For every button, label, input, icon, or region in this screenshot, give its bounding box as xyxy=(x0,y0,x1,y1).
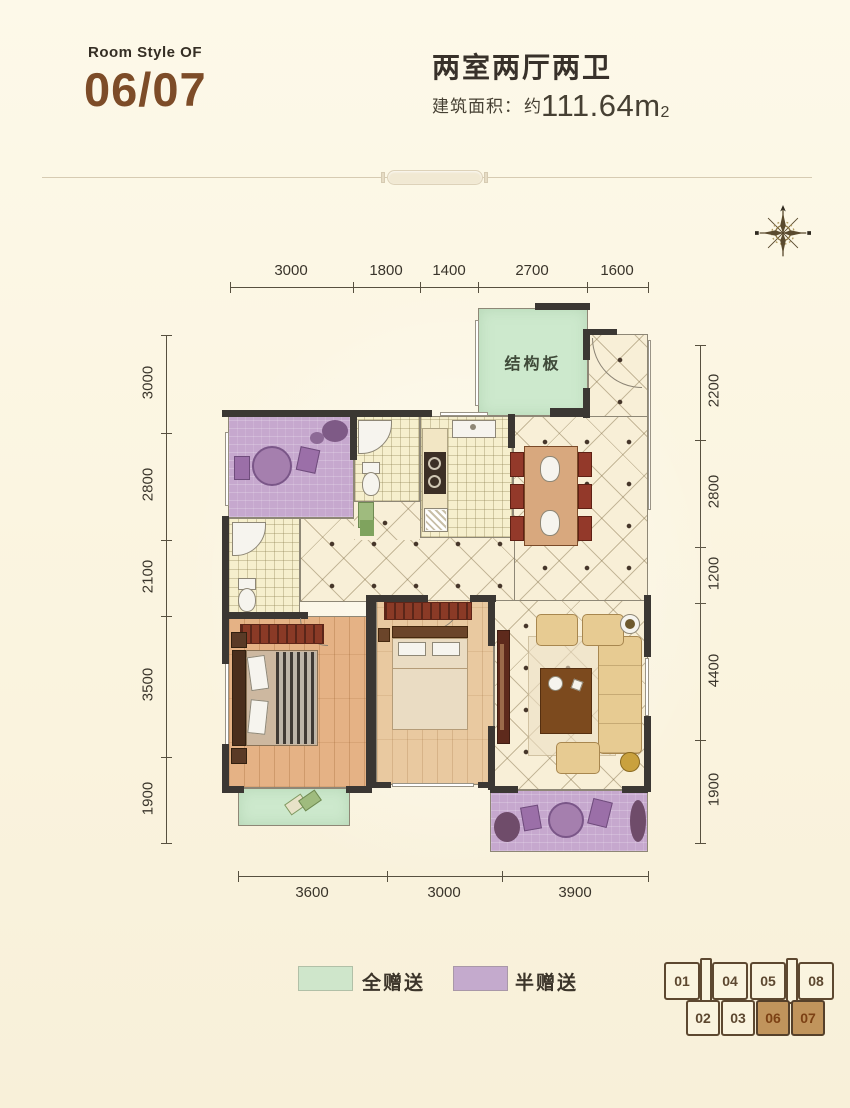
wall xyxy=(488,726,495,790)
window xyxy=(645,658,649,716)
compass-rose-icon xyxy=(755,205,811,261)
wall xyxy=(644,595,651,657)
tv-screen xyxy=(500,644,504,730)
dim-left-1: 3000 xyxy=(140,348,157,418)
keyplan-unit-08: 08 xyxy=(798,962,834,1000)
pillow xyxy=(398,642,426,656)
dim-left-3: 2100 xyxy=(140,542,157,612)
legend-label-half-gift: 半赠送 xyxy=(515,968,578,995)
bed-blanket xyxy=(276,652,316,744)
dining-chair xyxy=(510,452,524,477)
plant xyxy=(360,520,374,536)
legend-swatch-full-gift xyxy=(298,966,353,991)
sofa-single xyxy=(582,614,624,646)
divider-endcap-right xyxy=(484,172,488,183)
plant xyxy=(625,619,635,629)
wall xyxy=(222,410,432,417)
wall xyxy=(376,782,391,788)
dim-bottom-2: 3000 xyxy=(404,884,484,901)
tick xyxy=(161,757,172,758)
wall xyxy=(488,600,495,646)
appliance-detail xyxy=(426,510,446,530)
wall xyxy=(366,598,376,788)
legend-swatch-half-gift xyxy=(453,966,508,991)
wall xyxy=(222,612,308,619)
tea-set xyxy=(548,676,563,691)
pillow xyxy=(247,699,268,735)
round-table xyxy=(252,446,292,486)
wardrobe xyxy=(384,602,472,620)
keyplan-unit-04: 04 xyxy=(712,962,748,1000)
burner xyxy=(428,475,441,488)
tick xyxy=(161,843,172,844)
wall xyxy=(644,716,651,792)
divider-endcap-left xyxy=(381,172,385,183)
structural-slab-label: 结构板 xyxy=(504,350,561,374)
wall xyxy=(583,330,590,360)
area-line: 建筑面积： 约 111.64m 2 xyxy=(432,90,669,121)
dim-top-4: 2700 xyxy=(492,262,572,279)
wall xyxy=(222,786,244,793)
wall xyxy=(222,516,229,618)
dim-top-3: 1400 xyxy=(409,262,489,279)
scale-line-left xyxy=(166,335,167,843)
tick xyxy=(161,433,172,434)
wall xyxy=(366,595,428,602)
keyplan-unit-05: 05 xyxy=(750,962,786,1000)
chair xyxy=(520,805,542,832)
area-exponent: 2 xyxy=(661,105,670,121)
dining-chair xyxy=(578,516,592,541)
nightstand xyxy=(231,632,247,648)
window xyxy=(225,432,229,506)
stair-core xyxy=(786,958,798,1004)
wall xyxy=(508,414,515,448)
window xyxy=(440,412,488,416)
bed-headboard xyxy=(392,626,468,638)
place-setting xyxy=(540,510,560,536)
layout-title: 两室两厅两卫 xyxy=(432,46,612,86)
window xyxy=(475,320,479,406)
chair xyxy=(234,456,250,480)
sofa-main xyxy=(598,636,642,754)
wardrobe xyxy=(240,624,324,644)
nightstand xyxy=(378,628,390,642)
keyplan-unit-06: 06 xyxy=(756,1000,790,1036)
dim-bottom-3: 3900 xyxy=(535,884,615,901)
place-setting xyxy=(540,456,560,482)
tick xyxy=(161,616,172,617)
keyplan-unit-02: 02 xyxy=(686,1000,720,1036)
window xyxy=(648,340,651,510)
keyplan-unit-01: 01 xyxy=(664,962,700,1000)
toilet xyxy=(238,588,256,612)
dim-top-5: 1600 xyxy=(577,262,657,279)
sofa-single xyxy=(536,614,578,646)
wall xyxy=(222,616,229,664)
area-approx: 约 xyxy=(524,92,541,121)
stair-core xyxy=(700,958,712,1004)
wall xyxy=(535,303,590,310)
pillow xyxy=(432,642,460,656)
dim-left-2: 2800 xyxy=(140,450,157,520)
room-numbers: 06/07 xyxy=(84,62,207,117)
dining-chair xyxy=(510,516,524,541)
wall xyxy=(350,412,357,460)
keyplan-unit-03: 03 xyxy=(721,1000,755,1036)
dining-chair xyxy=(578,484,592,509)
window xyxy=(225,662,229,748)
bed-headboard xyxy=(232,650,246,746)
sofa-single xyxy=(556,742,600,774)
blanket-fold xyxy=(392,668,468,669)
room-style-label: Room Style OF xyxy=(88,44,202,61)
window xyxy=(392,783,474,787)
burner xyxy=(428,457,441,470)
dining-chair xyxy=(510,484,524,509)
toilet xyxy=(362,472,380,496)
dim-left-5: 1900 xyxy=(140,764,157,834)
dim-left-4: 3500 xyxy=(140,650,157,720)
plant-pot xyxy=(620,752,640,772)
plant xyxy=(630,800,646,842)
area-label: 建筑面积： xyxy=(432,92,522,121)
wall xyxy=(622,786,648,793)
wall xyxy=(490,786,518,793)
structural-slab-room: 结构板 xyxy=(478,308,588,416)
tick xyxy=(161,540,172,541)
plant xyxy=(494,812,520,842)
wall xyxy=(222,744,229,792)
area-value: 111.64m xyxy=(541,90,661,121)
round-table xyxy=(548,802,584,838)
plant xyxy=(310,432,324,444)
keyplan-unit-07: 07 xyxy=(791,1000,825,1036)
plant xyxy=(322,420,348,442)
wall xyxy=(550,408,590,417)
legend-label-full-gift: 全赠送 xyxy=(362,968,425,995)
dining-chair xyxy=(578,452,592,477)
nightstand xyxy=(231,748,247,764)
coffee-table xyxy=(540,668,592,734)
divider-capsule xyxy=(387,170,483,185)
dim-top-1: 3000 xyxy=(251,262,331,279)
faucet xyxy=(470,424,476,430)
tick xyxy=(161,335,172,336)
dim-bottom-1: 3600 xyxy=(272,884,352,901)
